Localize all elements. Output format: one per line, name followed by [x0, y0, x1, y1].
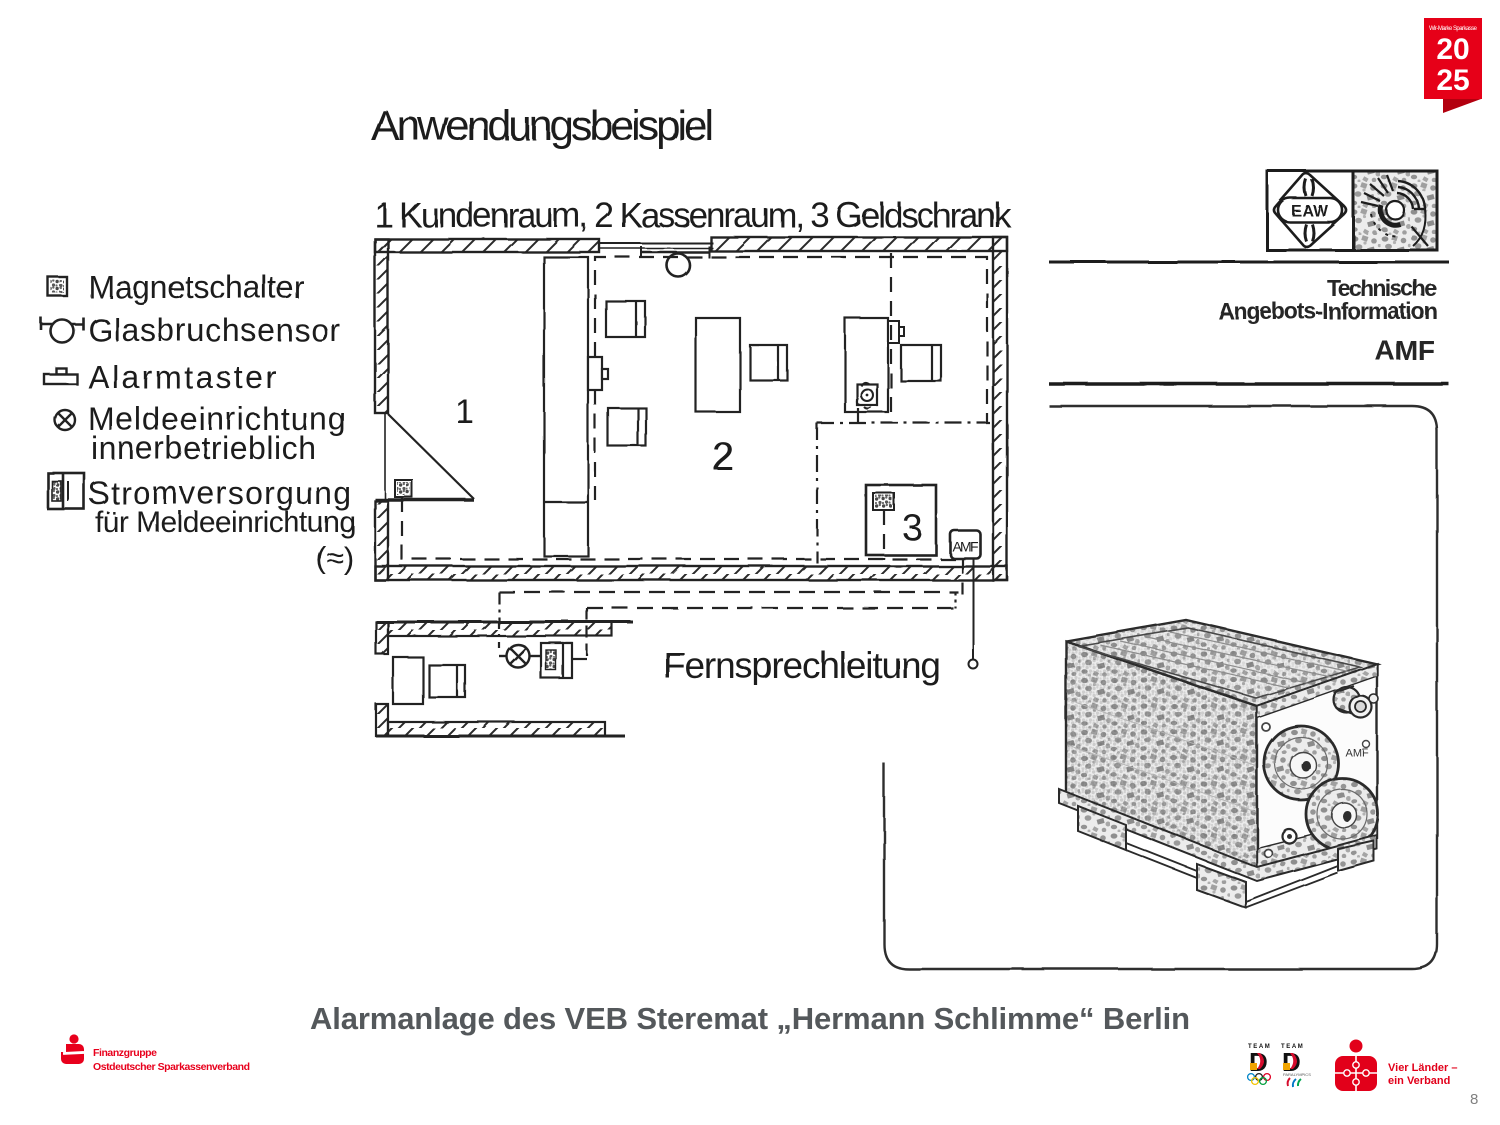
svg-text:Angebots-Information: Angebots-Information — [1218, 298, 1438, 324]
svg-text:1 Kundenraum, 2 Kassenraum,: 1 Kundenraum, 2 Kassenraum, 3 Geldschran… — [374, 196, 1012, 235]
svg-text:Fernsprechleitung: Fernsprechleitung — [663, 645, 941, 686]
svg-text:Anwendungsbeispiel: Anwendungsbeispiel — [371, 102, 714, 150]
svg-text:AMF: AMF — [1345, 747, 1369, 759]
svg-text:20: 20 — [1436, 33, 1469, 66]
svg-text:innerbetrieblich: innerbetrieblich — [91, 430, 316, 466]
svg-text:2: 2 — [712, 435, 734, 479]
svg-text:für Meldeeinrichtung: für Meldeeinrichtung — [95, 506, 356, 539]
svg-text:AMF: AMF — [1375, 335, 1437, 366]
svg-text:Magnetschalter: Magnetschalter — [88, 269, 304, 305]
svg-text:(≈): (≈) — [316, 540, 354, 575]
svg-text:EAW: EAW — [1291, 203, 1329, 220]
svg-text:Alarmanlage des VEB Steremat „: Alarmanlage des VEB Steremat „Hermann Sc… — [310, 1001, 1190, 1036]
svg-text:Vier Länder –: Vier Länder – — [1388, 1062, 1458, 1074]
svg-text:3: 3 — [902, 507, 923, 548]
svg-text:D: D — [1249, 1047, 1268, 1077]
svg-text:8: 8 — [1470, 1091, 1478, 1108]
svg-text:ein Verband: ein Verband — [1388, 1075, 1450, 1087]
svg-text:Ostdeutscher Sparkassenverband: Ostdeutscher Sparkassenverband — [93, 1061, 250, 1073]
svg-text:1: 1 — [455, 393, 474, 431]
svg-text:Alarmtaster: Alarmtaster — [88, 359, 276, 395]
svg-text:Glasbruchsensor: Glasbruchsensor — [88, 312, 340, 348]
svg-text:AMF: AMF — [952, 538, 978, 554]
svg-text:25: 25 — [1436, 64, 1469, 97]
svg-text:Wir-Marke Sparkasse: Wir-Marke Sparkasse — [1429, 26, 1478, 32]
svg-text:PARALYMPICS: PARALYMPICS — [1283, 1072, 1311, 1077]
svg-text:Finanzgruppe: Finanzgruppe — [93, 1047, 157, 1059]
